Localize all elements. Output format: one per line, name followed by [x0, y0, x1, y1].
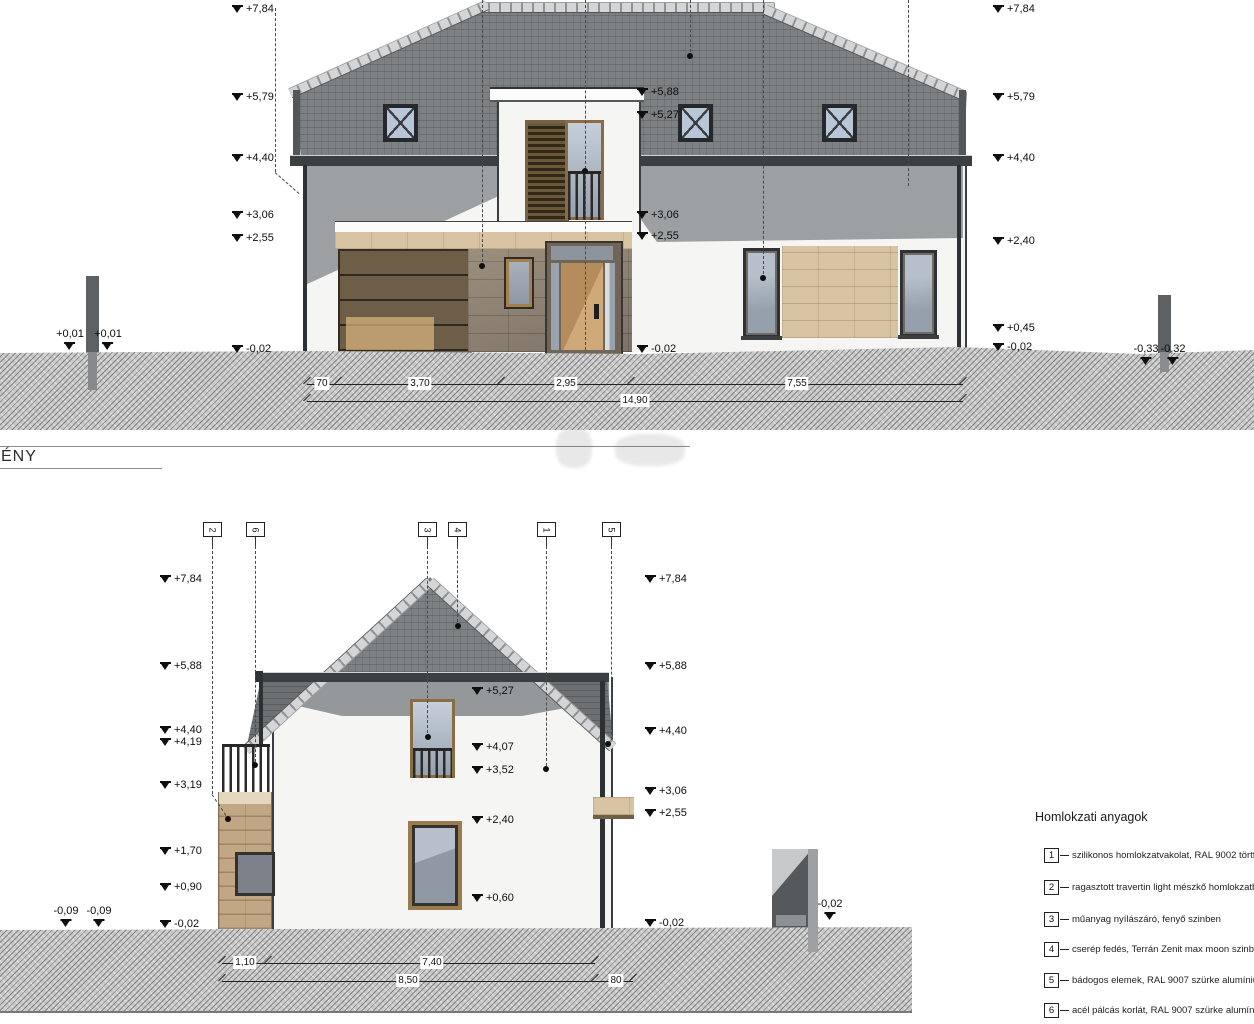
dimension-label: 80: [608, 974, 623, 987]
leader-dot: [605, 741, 611, 747]
downpipe-left: [303, 165, 307, 352]
level-symbol-icon: [472, 893, 483, 903]
legend-item-number: 6: [1044, 1003, 1059, 1018]
site-level-marker: -0,33: [1133, 344, 1158, 366]
level-symbol-icon: [232, 153, 243, 163]
dimension-label: 8,50: [396, 974, 419, 987]
column-top-band: [219, 792, 271, 804]
material-tag: 3: [418, 522, 437, 537]
level-marker: +3,06: [232, 210, 274, 221]
legend-item-number: 2: [1044, 880, 1059, 895]
legend-item: 2ragasztott travertin light mészkő homlo…: [1044, 880, 1254, 895]
leader-diagonal: [275, 172, 300, 194]
roof-window-right-icon: [822, 104, 857, 142]
downpipe-left: [259, 681, 263, 747]
level-marker: +5,88: [645, 661, 687, 672]
level-marker: -0,02: [232, 344, 271, 355]
level-symbol-icon: [472, 742, 483, 752]
level-marker: +1,70: [160, 846, 202, 857]
tag-leader-line: [546, 546, 547, 766]
legend-item-text: cserép fedés, Terrán Zenit max moon szin…: [1072, 944, 1254, 955]
legend-item-dash: [1060, 887, 1069, 888]
level-symbol-icon: [637, 110, 648, 120]
level-symbol-icon: [993, 92, 1004, 102]
site-level-marker: -0,02: [817, 899, 842, 921]
level-marker: +7,84: [993, 4, 1035, 15]
legend-item-dash: [1060, 919, 1069, 920]
site-level-marker: -0,32: [1160, 344, 1185, 366]
leader-dot: [252, 762, 258, 768]
front-door-leaf: [561, 263, 603, 350]
level-symbol-icon: [645, 808, 656, 818]
level-symbol-icon: [645, 918, 656, 928]
leader-line: [482, 0, 483, 262]
level-symbol-icon: [232, 233, 243, 243]
level-symbol-icon: [232, 4, 243, 14]
leader-dot: [760, 275, 766, 281]
level-symbol-icon: [60, 918, 71, 928]
material-tag: 2: [203, 522, 222, 537]
level-marker: +7,84: [232, 4, 274, 15]
tag-leader-line: [611, 546, 612, 740]
outdoor-unit-lid: [772, 849, 812, 896]
dormer-cap: [490, 87, 644, 102]
level-marker: +5,79: [232, 92, 274, 103]
drawing-sheet: ÉNY +7,84+5,79+4,40+3,06+2,55-0,02+5,88+…: [0, 0, 1254, 1024]
legend-item: 5bádogos elemek, RAL 9007 szürke alumíni…: [1044, 973, 1254, 988]
site-level-marker: -0,09: [53, 906, 78, 928]
right-wing-travertine-panel: [782, 246, 898, 338]
downpipe-right: [957, 165, 961, 352]
roof-window-middle-icon: [678, 104, 713, 142]
level-marker: +4,07: [472, 742, 514, 753]
level-marker: +3,06: [645, 786, 687, 797]
gable-roof-face: [327, 575, 533, 679]
tag-leader-stub: [611, 537, 612, 546]
level-symbol-icon: [645, 786, 656, 796]
material-tag: 6: [246, 522, 265, 537]
leader-line: [908, 0, 909, 186]
legend-item: 1szilikonos homlokzatvakolat, RAL 9002 t…: [1044, 848, 1254, 863]
level-symbol-icon: [232, 210, 243, 220]
door-handle-icon: [594, 304, 599, 319]
level-symbol-icon: [645, 726, 656, 736]
level-symbol-icon: [232, 344, 243, 354]
level-marker: +4,40: [232, 153, 274, 164]
level-symbol-icon: [65, 341, 76, 351]
level-marker: -0,02: [637, 344, 676, 355]
level-symbol-icon: [160, 661, 171, 671]
right-wing-window-1: [743, 248, 780, 338]
door-sidelight-right: [605, 263, 615, 350]
level-symbol-icon: [645, 661, 656, 671]
legend-item: 6acél pálcás korlát, RAL 9007 szürke alu…: [1044, 1003, 1254, 1018]
tag-leader-line: [255, 546, 256, 762]
legend-item-text: bádogos elemek, RAL 9007 szürke alumíniu…: [1072, 975, 1254, 986]
leader-dot: [582, 168, 588, 174]
dimension-line: [307, 384, 963, 385]
side-travertine-beam: [593, 797, 634, 819]
leader-dot: [543, 766, 549, 772]
entry-small-window: [504, 257, 534, 309]
level-symbol-icon: [160, 882, 171, 892]
legend-item-text: műanyag nyílászáró, fenyő szinben: [1072, 914, 1221, 925]
level-symbol-icon: [637, 231, 648, 241]
roof-edge-right: [959, 90, 966, 157]
window-sill-1: [741, 336, 782, 340]
ground-band-top: [0, 345, 1254, 430]
louver-shutter: [525, 120, 569, 225]
site-pole-left-buried: [88, 352, 97, 390]
level-marker: -0,02: [993, 342, 1032, 353]
level-marker: +3,52: [472, 765, 514, 776]
leader-line: [585, 0, 586, 350]
tag-leader-stub: [212, 537, 213, 546]
legend-item-text: acél pálcás korlát, RAL 9007 szürke alum…: [1072, 1005, 1254, 1016]
tag-leader-line: [212, 546, 213, 794]
dimension-label: 7,40: [420, 956, 443, 969]
level-symbol-icon: [160, 846, 171, 856]
dimension-label: 70: [314, 377, 329, 390]
ridge-cap: [479, 2, 775, 13]
level-marker: +4,40: [993, 153, 1035, 164]
level-marker: +0,90: [160, 882, 202, 893]
legend-item-number: 5: [1044, 973, 1059, 988]
legend-item-dash: [1060, 855, 1069, 856]
level-symbol-icon: [637, 344, 648, 354]
level-marker: +2,55: [645, 808, 687, 819]
level-symbol-icon: [637, 210, 648, 220]
leader-line: [690, 0, 691, 52]
leader-dot: [479, 263, 485, 269]
legend-item: 3műanyag nyílászáró, fenyő szinben: [1044, 912, 1221, 927]
lower-window: [408, 821, 462, 910]
site-level-marker: +0,01: [56, 329, 84, 351]
level-marker: +5,79: [993, 92, 1035, 103]
leader-line: [763, 0, 764, 274]
upper-french-window: [410, 699, 455, 778]
ground-bottom-edge-line: [0, 1011, 912, 1013]
level-symbol-icon: [160, 919, 171, 929]
dimension-label: 2,95: [554, 377, 577, 390]
legend-item: 4cserép fedés, Terrán Zenit max moon szi…: [1044, 942, 1254, 957]
leader-line: [275, 8, 276, 172]
balcony-railing: [222, 744, 270, 797]
level-marker: +5,88: [160, 661, 202, 672]
level-symbol-icon: [637, 87, 648, 97]
leader-dot: [425, 734, 431, 740]
legend-item-dash: [1060, 980, 1069, 981]
tag-leader-stub: [546, 537, 547, 546]
level-marker: +5,27: [637, 110, 679, 121]
level-symbol-icon: [645, 574, 656, 584]
site-level-marker: -0,09: [86, 906, 111, 928]
sheet-divider-line-short: [0, 468, 162, 469]
column-window-panel: [235, 852, 275, 896]
legend-item-dash: [1060, 1010, 1069, 1011]
upper-window-railing: [413, 748, 452, 778]
door-transom: [551, 246, 613, 260]
level-marker: +4,19: [160, 737, 202, 748]
site-level-marker: +0,01: [94, 329, 122, 351]
legend-item-number: 1: [1044, 848, 1059, 863]
dimension-label: 1,10: [233, 956, 256, 969]
leader-dot: [687, 53, 693, 59]
door-sidelight-left: [551, 263, 559, 350]
legend-item-dash: [1060, 949, 1069, 950]
level-marker: +2,55: [637, 231, 679, 242]
gable-fascia: [259, 672, 609, 682]
level-symbol-icon: [160, 725, 171, 735]
material-tag: 5: [602, 522, 621, 537]
level-marker: +2,55: [232, 233, 274, 244]
level-marker: +7,84: [160, 574, 202, 585]
entry-door-unit: [545, 241, 623, 356]
elevation-label: ÉNY: [1, 448, 37, 466]
level-symbol-icon: [824, 911, 835, 921]
level-symbol-icon: [93, 918, 104, 928]
garage-door: [338, 249, 472, 356]
legend-item-text: ragasztott travertin light mészkő homlok…: [1072, 882, 1254, 893]
level-symbol-icon: [232, 92, 243, 102]
watermark: [556, 428, 592, 468]
level-symbol-icon: [1140, 356, 1151, 366]
level-marker: +2,40: [993, 236, 1035, 247]
tag-leader-stub: [255, 537, 256, 546]
garage-door-highlight: [346, 317, 434, 350]
level-marker: +5,27: [472, 686, 514, 697]
window-sill-2: [898, 335, 939, 339]
level-symbol-icon: [993, 323, 1004, 333]
roof-window-left-icon: [383, 104, 418, 142]
dimension-label: 3,70: [408, 377, 431, 390]
legend-item-text: szilikonos homlokzatvakolat, RAL 9002 tö…: [1072, 850, 1254, 861]
level-marker: +4,40: [645, 726, 687, 737]
level-marker: +0,45: [993, 323, 1035, 334]
dimension-label: 7,55: [785, 377, 808, 390]
legend-item-number: 3: [1044, 912, 1059, 927]
level-marker: -0,02: [160, 919, 199, 930]
dimension-line: [222, 981, 633, 982]
travertine-column: [218, 792, 272, 929]
top-elevation: ÉNY +7,84+5,79+4,40+3,06+2,55-0,02+5,88+…: [0, 0, 1254, 470]
level-symbol-icon: [993, 342, 1004, 352]
level-symbol-icon: [160, 737, 171, 747]
level-marker: +7,84: [645, 574, 687, 585]
level-symbol-icon: [160, 780, 171, 790]
level-marker: +3,06: [637, 210, 679, 221]
tag-leader-stub: [457, 537, 458, 546]
outdoor-unit-vent: [776, 915, 806, 926]
tag-leader-line: [457, 546, 458, 622]
tag-leader-stub: [427, 537, 428, 546]
eaves-shadow-right: [637, 194, 963, 242]
level-marker: +4,40: [160, 725, 202, 736]
level-symbol-icon: [160, 574, 171, 584]
level-symbol-icon: [993, 4, 1004, 14]
level-symbol-icon: [993, 236, 1004, 246]
ground-band-bottom: [0, 925, 912, 1012]
material-tag: 1: [537, 522, 556, 537]
level-marker: +2,40: [472, 815, 514, 826]
level-symbol-icon: [472, 815, 483, 825]
level-marker: +5,88: [637, 87, 679, 98]
right-wing-window-2: [900, 250, 937, 337]
level-marker: +3,19: [160, 780, 202, 791]
tag-leader-line: [427, 546, 428, 733]
level-symbol-icon: [472, 765, 483, 775]
level-symbol-icon: [1167, 356, 1178, 366]
leader-dot: [455, 623, 461, 629]
material-tag: 4: [448, 522, 467, 537]
leader-dot: [225, 816, 231, 822]
dimension-line: [222, 963, 595, 964]
watermark: [615, 434, 685, 466]
level-symbol-icon: [103, 341, 114, 351]
level-symbol-icon: [993, 153, 1004, 163]
level-marker: +0,60: [472, 893, 514, 904]
outdoor-unit: [772, 849, 812, 930]
roof-edge-left: [293, 90, 300, 157]
dimension-label: 14,90: [620, 394, 649, 407]
level-symbol-icon: [472, 686, 483, 696]
legend-title: Homlokzati anyagok: [1035, 810, 1148, 824]
level-marker: -0,02: [645, 918, 684, 929]
legend-item-number: 4: [1044, 942, 1059, 957]
